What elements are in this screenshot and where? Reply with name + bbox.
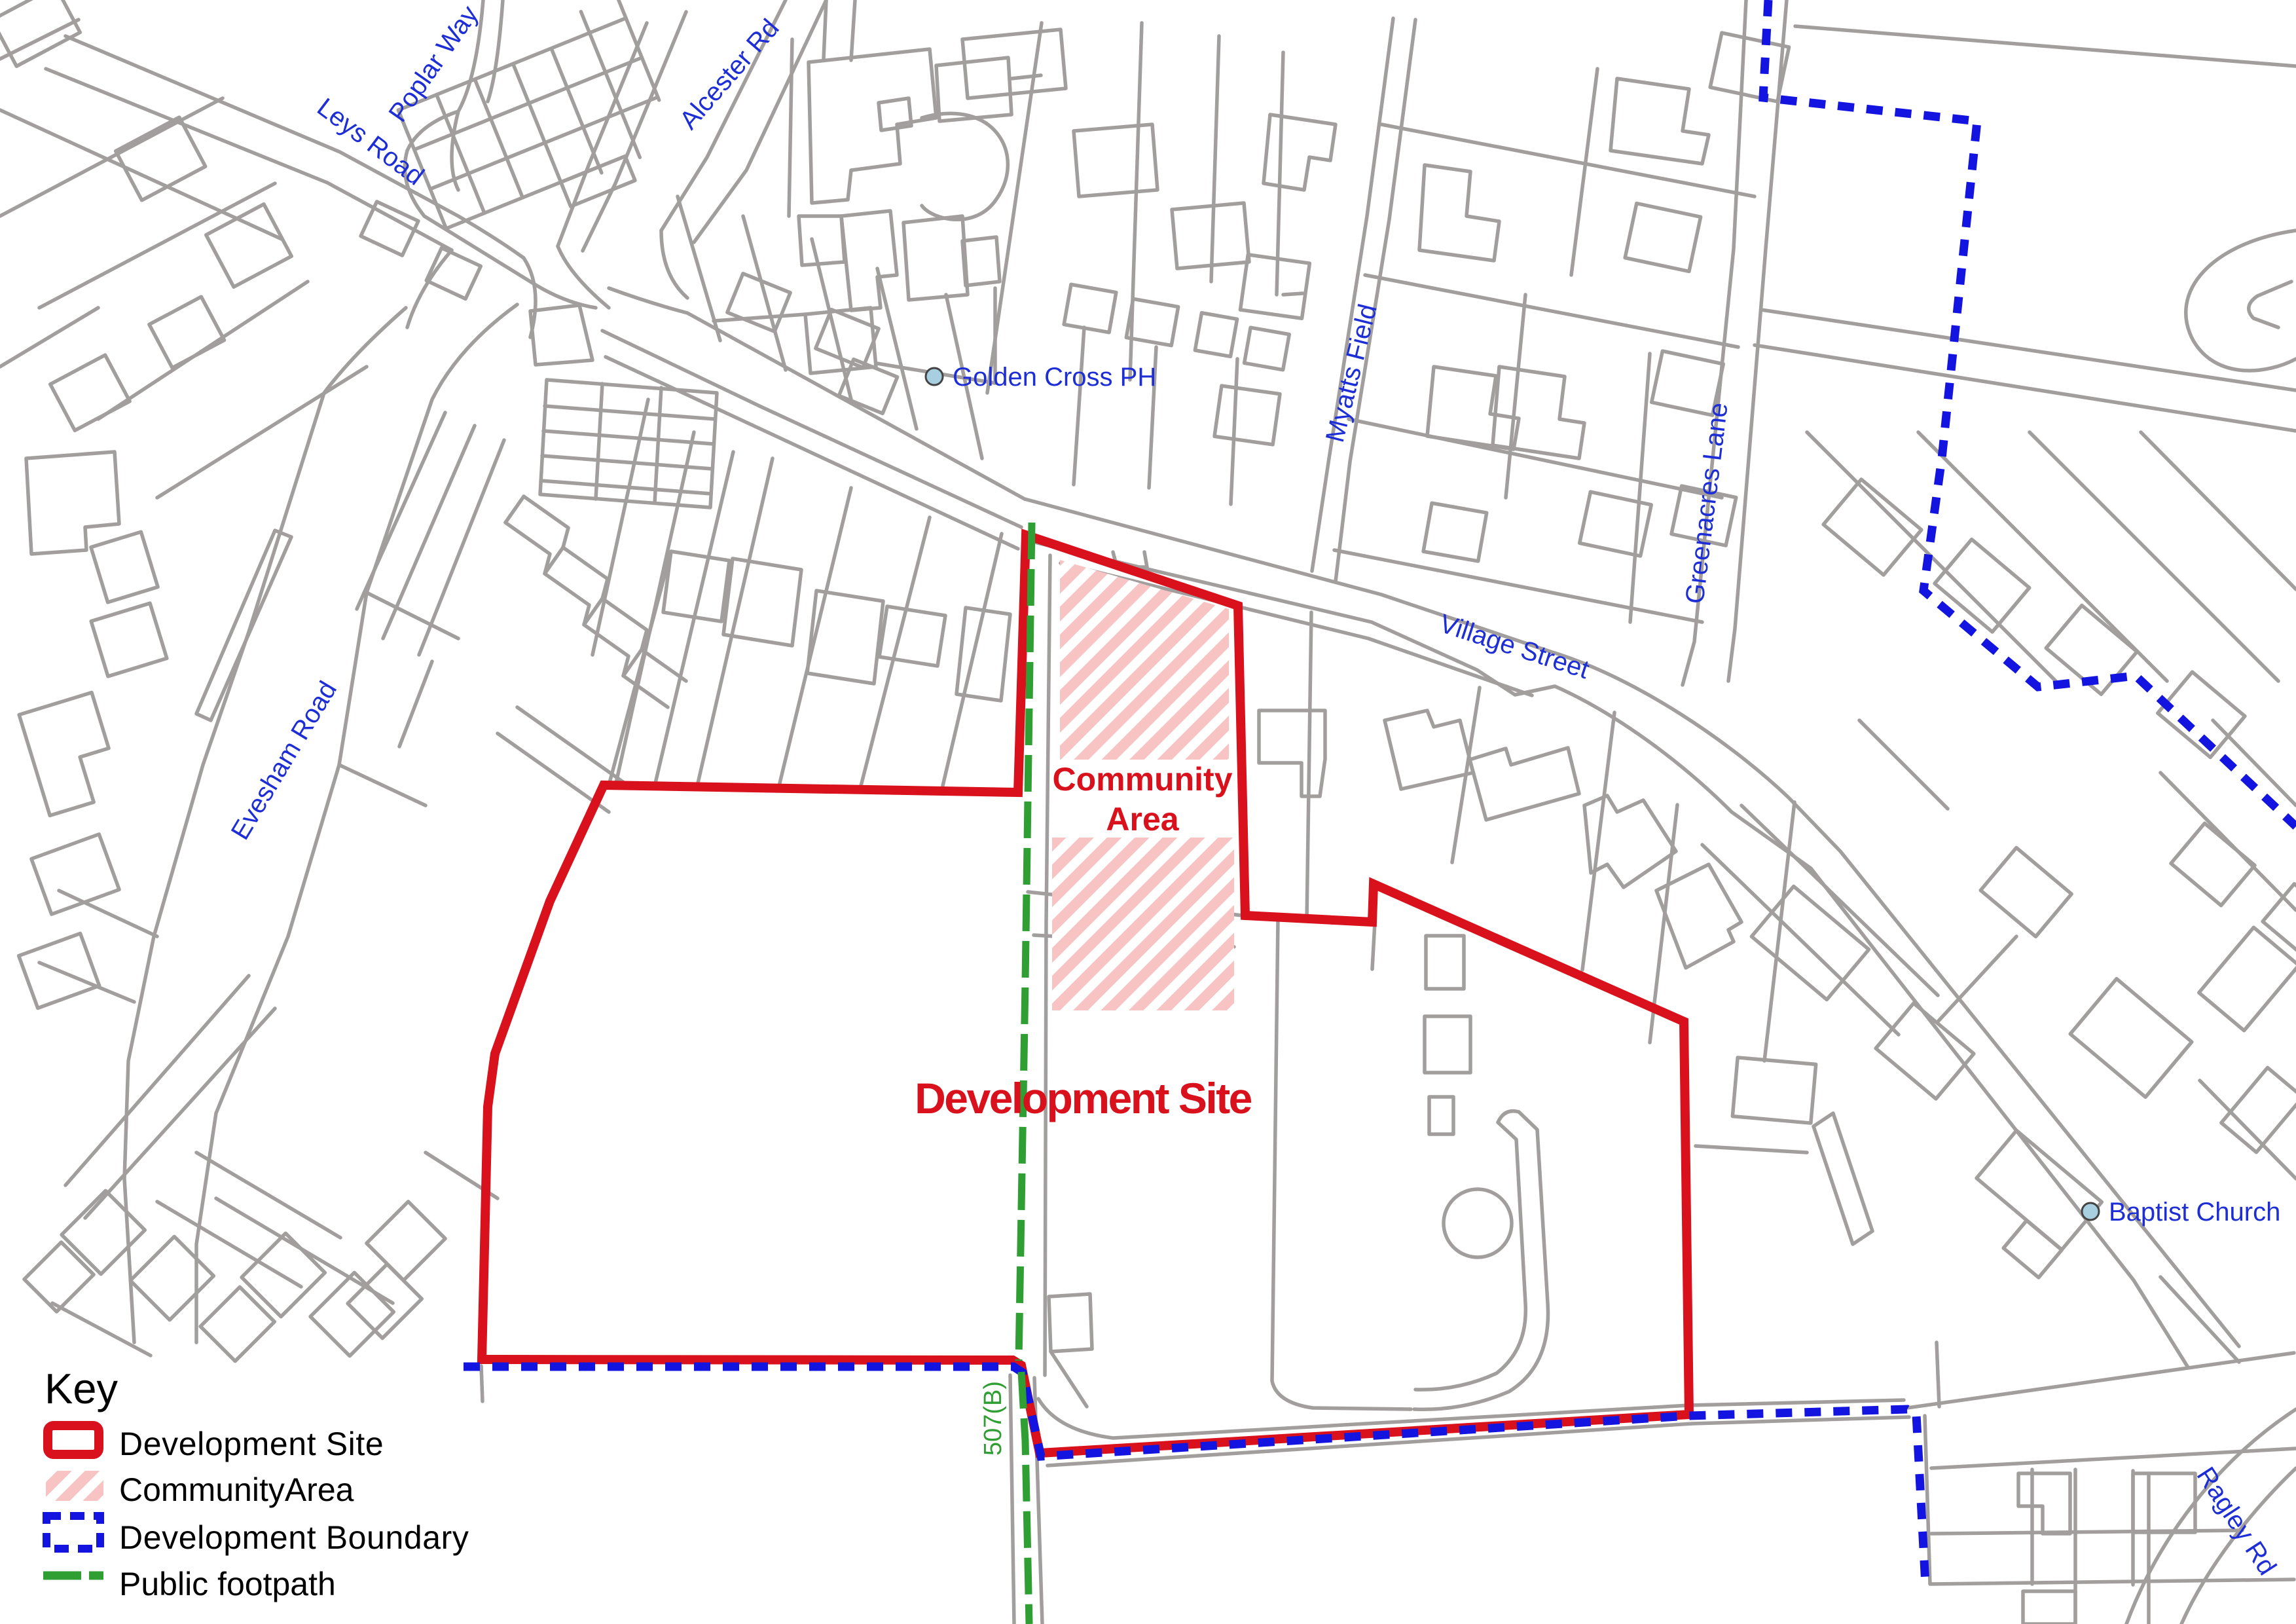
- svg-text:Development Site: Development Site: [119, 1426, 384, 1462]
- svg-text:Baptist Church: Baptist Church: [2109, 1198, 2280, 1227]
- svg-text:507(B): 507(B): [979, 1381, 1007, 1456]
- svg-text:Development Site: Development Site: [915, 1074, 1252, 1122]
- svg-text:Community: Community: [1053, 761, 1233, 798]
- svg-text:Key: Key: [45, 1365, 118, 1412]
- svg-text:Area: Area: [1106, 801, 1179, 838]
- svg-text:Golden Cross PH: Golden Cross PH: [953, 363, 1156, 392]
- svg-text:Development Boundary: Development Boundary: [119, 1519, 469, 1556]
- svg-text:Public footpath: Public footpath: [119, 1566, 336, 1602]
- svg-text:CommunityArea: CommunityArea: [119, 1471, 354, 1508]
